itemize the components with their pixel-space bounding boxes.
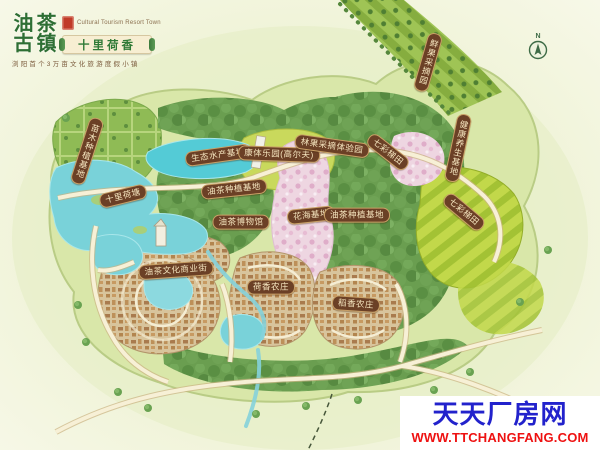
watermark-site-url: WWW.TTCHANGFANG.COM [411,430,588,445]
compass-north-label: N [524,33,552,40]
brand-seal-icon [62,16,74,30]
banner-text: 十里荷香 [78,37,136,53]
resort-master-plan: 生态水产基地康体乐园(高尔夫)林果采摘体验园七彩梯田鲜果采摘园苗木种植基地十里荷… [0,0,600,450]
brand-char: 茶 [35,13,58,33]
brand-sub-block: Cultural Tourism Resort Town 十里荷香 [62,14,174,54]
brand-char: 油 [12,13,35,33]
brand-char: 古 [12,33,35,53]
brand-title: 油 茶 古 镇 [12,13,58,53]
compass-icon: N [524,33,552,60]
brand-subtitle-en: Cultural Tourism Resort Town [77,20,161,26]
banner-curl-icon [149,38,155,51]
brand-logo: 油 茶 古 镇 Cultural Tourism Resort Town 十里荷… [12,13,180,68]
watermark-site-name: 天天厂房网 [432,401,567,428]
brand-char: 镇 [35,33,58,53]
brand-banner: 十里荷香 [62,35,152,54]
watermark: 天天厂房网 WWW.TTCHANGFANG.COM [400,396,600,450]
banner-curl-icon [59,38,65,51]
brand-tagline: 浏阳首个3万亩文化旅游度假小镇 [12,58,180,68]
